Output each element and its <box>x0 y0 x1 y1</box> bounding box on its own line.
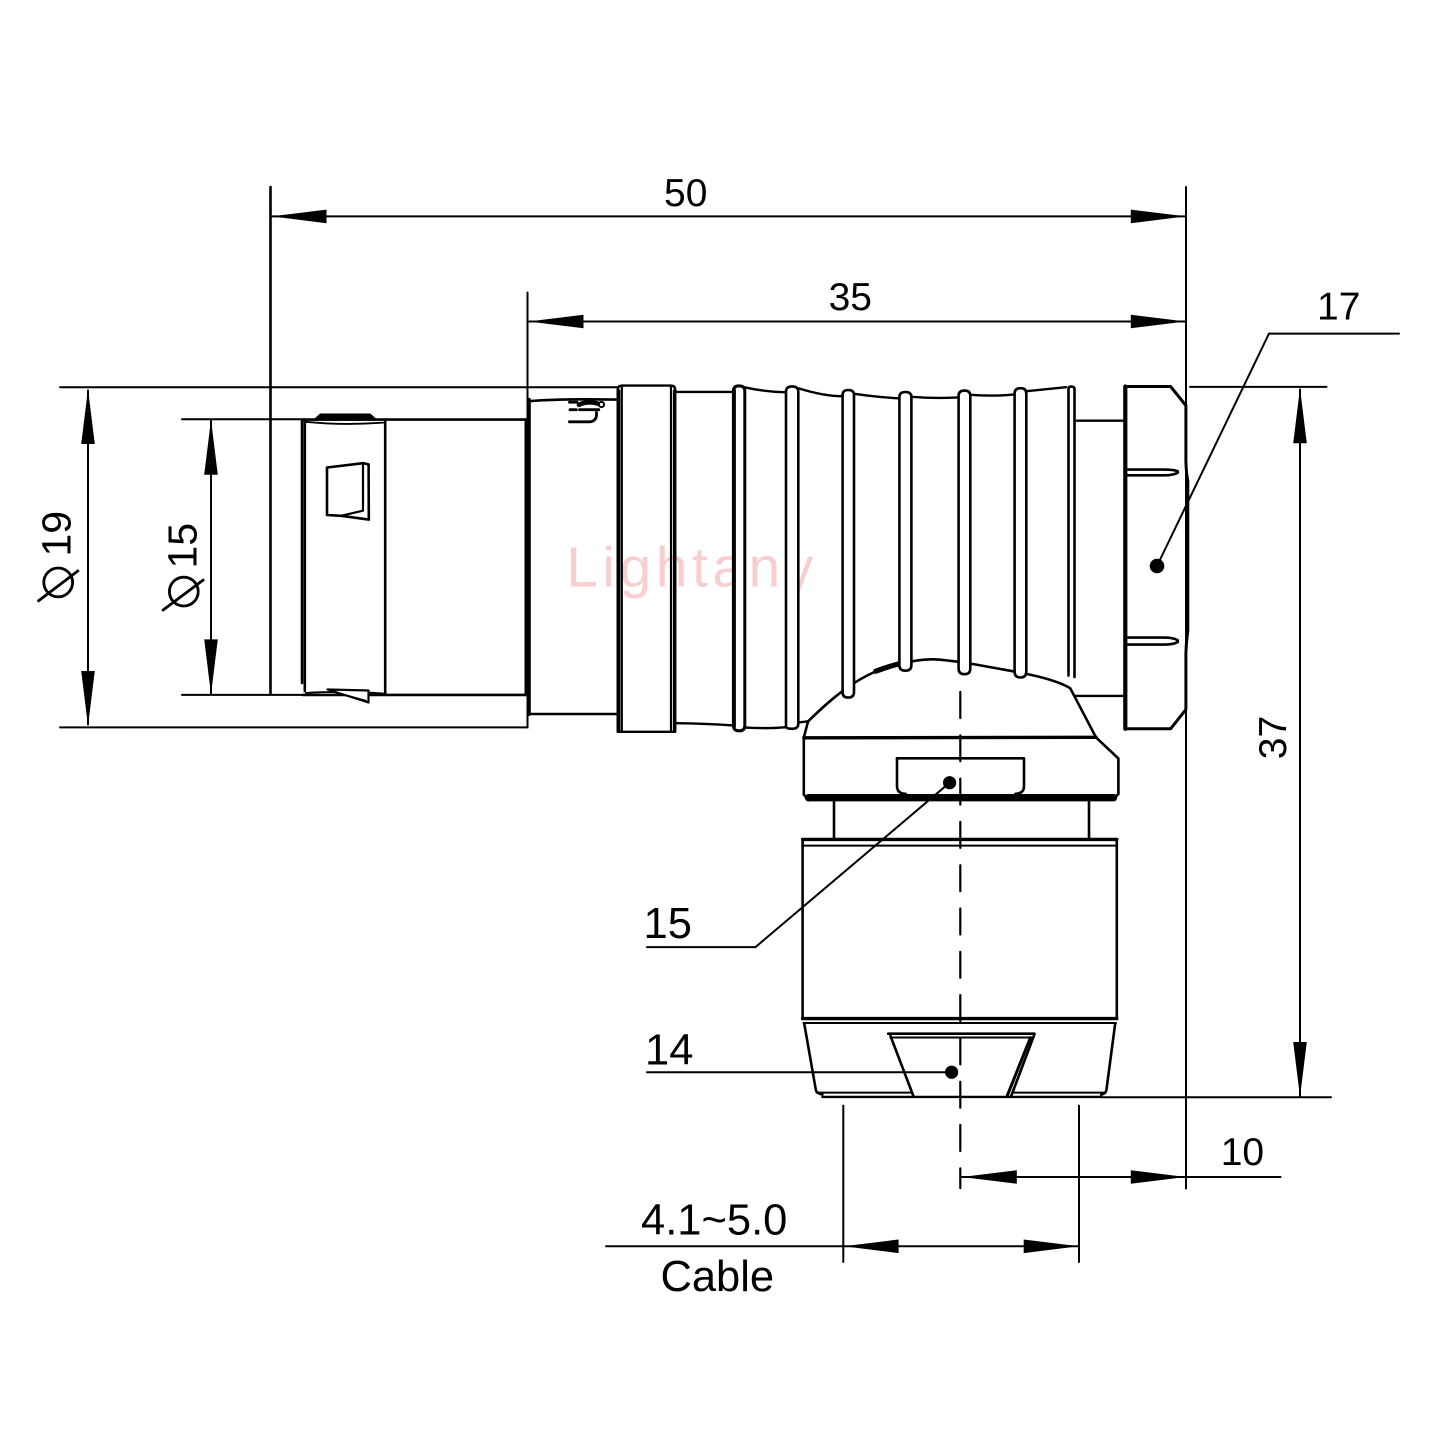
svg-text:Cable: Cable <box>660 1253 774 1301</box>
svg-text:10: 10 <box>1221 1131 1264 1174</box>
svg-text:35: 35 <box>829 276 872 319</box>
svg-text:15: 15 <box>644 900 692 948</box>
svg-text:4.1~5.0: 4.1~5.0 <box>641 1197 787 1245</box>
svg-text:17: 17 <box>1317 285 1360 328</box>
svg-text:14: 14 <box>645 1027 693 1075</box>
svg-text:37: 37 <box>1252 716 1295 759</box>
svg-text:Lightany: Lightany <box>566 536 818 600</box>
svg-text:50: 50 <box>664 172 707 215</box>
svg-text:15: 15 <box>160 523 206 569</box>
svg-text:19: 19 <box>34 511 80 557</box>
